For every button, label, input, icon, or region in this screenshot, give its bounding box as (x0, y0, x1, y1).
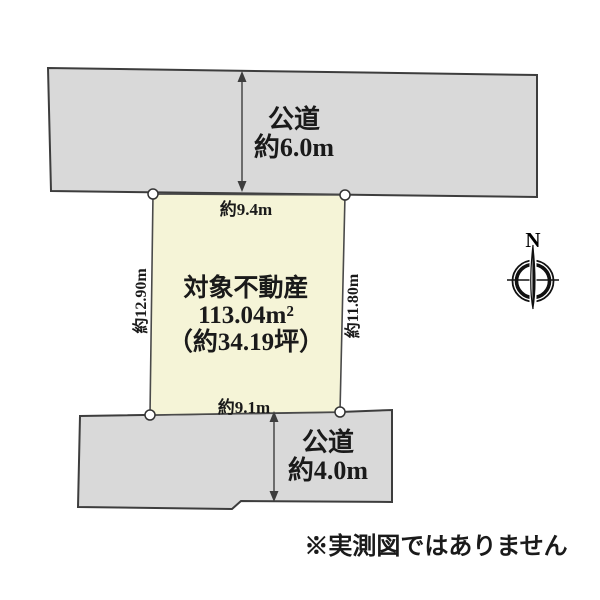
bottom-road-name: 公道 (288, 429, 368, 457)
vertex-top-left (148, 189, 158, 199)
top-road-label: 公道 約6.0m (254, 106, 334, 162)
top-road-name: 公道 (254, 106, 334, 134)
vertex-bottom-left (145, 410, 155, 420)
bottom-road-label: 公道 約4.0m (288, 429, 368, 485)
parcel-area-m2: 113.04m² (168, 302, 324, 329)
vertex-bottom-right (335, 407, 345, 417)
parcel-area-tsubo: （約34.19坪） (168, 329, 324, 356)
vertex-top-right (340, 190, 350, 200)
plot-diagram: N 公道 約6.0m 約9.4m 約12.90m 約11.80m 約9.1m 対… (0, 0, 600, 600)
parcel-info: 対象不動産 113.04m² （約34.19坪） (168, 275, 324, 356)
parcel-bottom-edge-label: 約9.1m (218, 393, 270, 418)
parcel-top-edge-label: 約9.4m (220, 195, 272, 220)
parcel-left-edge-label: 約12.90m (127, 268, 151, 333)
parcel-right-edge-label: 約11.80m (339, 274, 363, 338)
top-road-width: 約6.0m (254, 134, 334, 162)
compass-north-label: N (525, 228, 540, 252)
compass-icon: N (507, 228, 559, 310)
disclaimer-note: ※実測図ではありません (304, 526, 567, 561)
parcel-title: 対象不動産 (168, 275, 324, 302)
bottom-road-width: 約4.0m (288, 457, 368, 485)
